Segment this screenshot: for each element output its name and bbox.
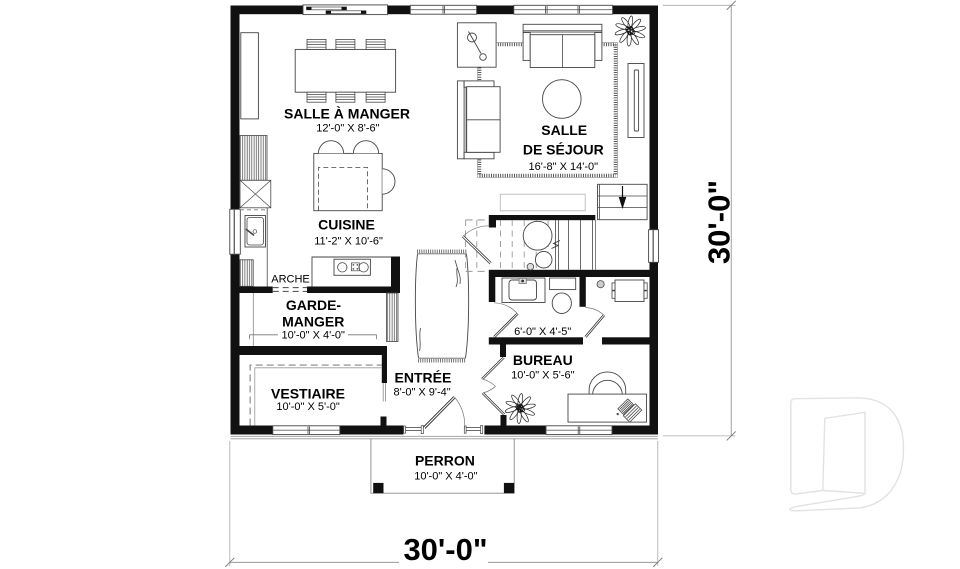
svg-text:10'-0" X 5'-6": 10'-0" X 5'-6" bbox=[511, 370, 574, 382]
svg-text:ENTRÉE: ENTRÉE bbox=[395, 369, 452, 385]
svg-text:30'-0": 30'-0" bbox=[701, 180, 736, 264]
svg-text:6'-0" X 4'-5": 6'-0" X 4'-5" bbox=[514, 326, 571, 338]
svg-text:10'-0" X 4'-0": 10'-0" X 4'-0" bbox=[414, 470, 477, 482]
svg-text:GARDE-: GARDE- bbox=[286, 297, 342, 313]
svg-text:BUREAU: BUREAU bbox=[513, 352, 573, 368]
svg-text:30'-0": 30'-0" bbox=[403, 532, 487, 567]
svg-text:DE SÉJOUR: DE SÉJOUR bbox=[523, 142, 604, 158]
svg-text:12'-0" X 8'-6": 12'-0" X 8'-6" bbox=[316, 122, 379, 134]
svg-text:16'-8" X 14'-0": 16'-8" X 14'-0" bbox=[529, 161, 599, 173]
svg-text:8'-0" X 9'-4": 8'-0" X 9'-4" bbox=[393, 386, 450, 398]
svg-text:10'-0" X 4'-0": 10'-0" X 4'-0" bbox=[282, 330, 345, 342]
svg-text:SALLE À MANGER: SALLE À MANGER bbox=[284, 106, 410, 122]
svg-text:CUISINE: CUISINE bbox=[318, 217, 375, 233]
svg-text:10'-0" X 5'-0": 10'-0" X 5'-0" bbox=[276, 401, 339, 413]
svg-text:MANGER: MANGER bbox=[282, 314, 344, 330]
svg-text:PERRON: PERRON bbox=[415, 452, 475, 468]
svg-text:11'-2" X 10'-6": 11'-2" X 10'-6" bbox=[314, 235, 383, 247]
svg-text:ARCHE: ARCHE bbox=[271, 274, 310, 286]
svg-text:VESTIAIRE: VESTIAIRE bbox=[271, 385, 345, 401]
svg-text:SALLE: SALLE bbox=[541, 122, 587, 138]
